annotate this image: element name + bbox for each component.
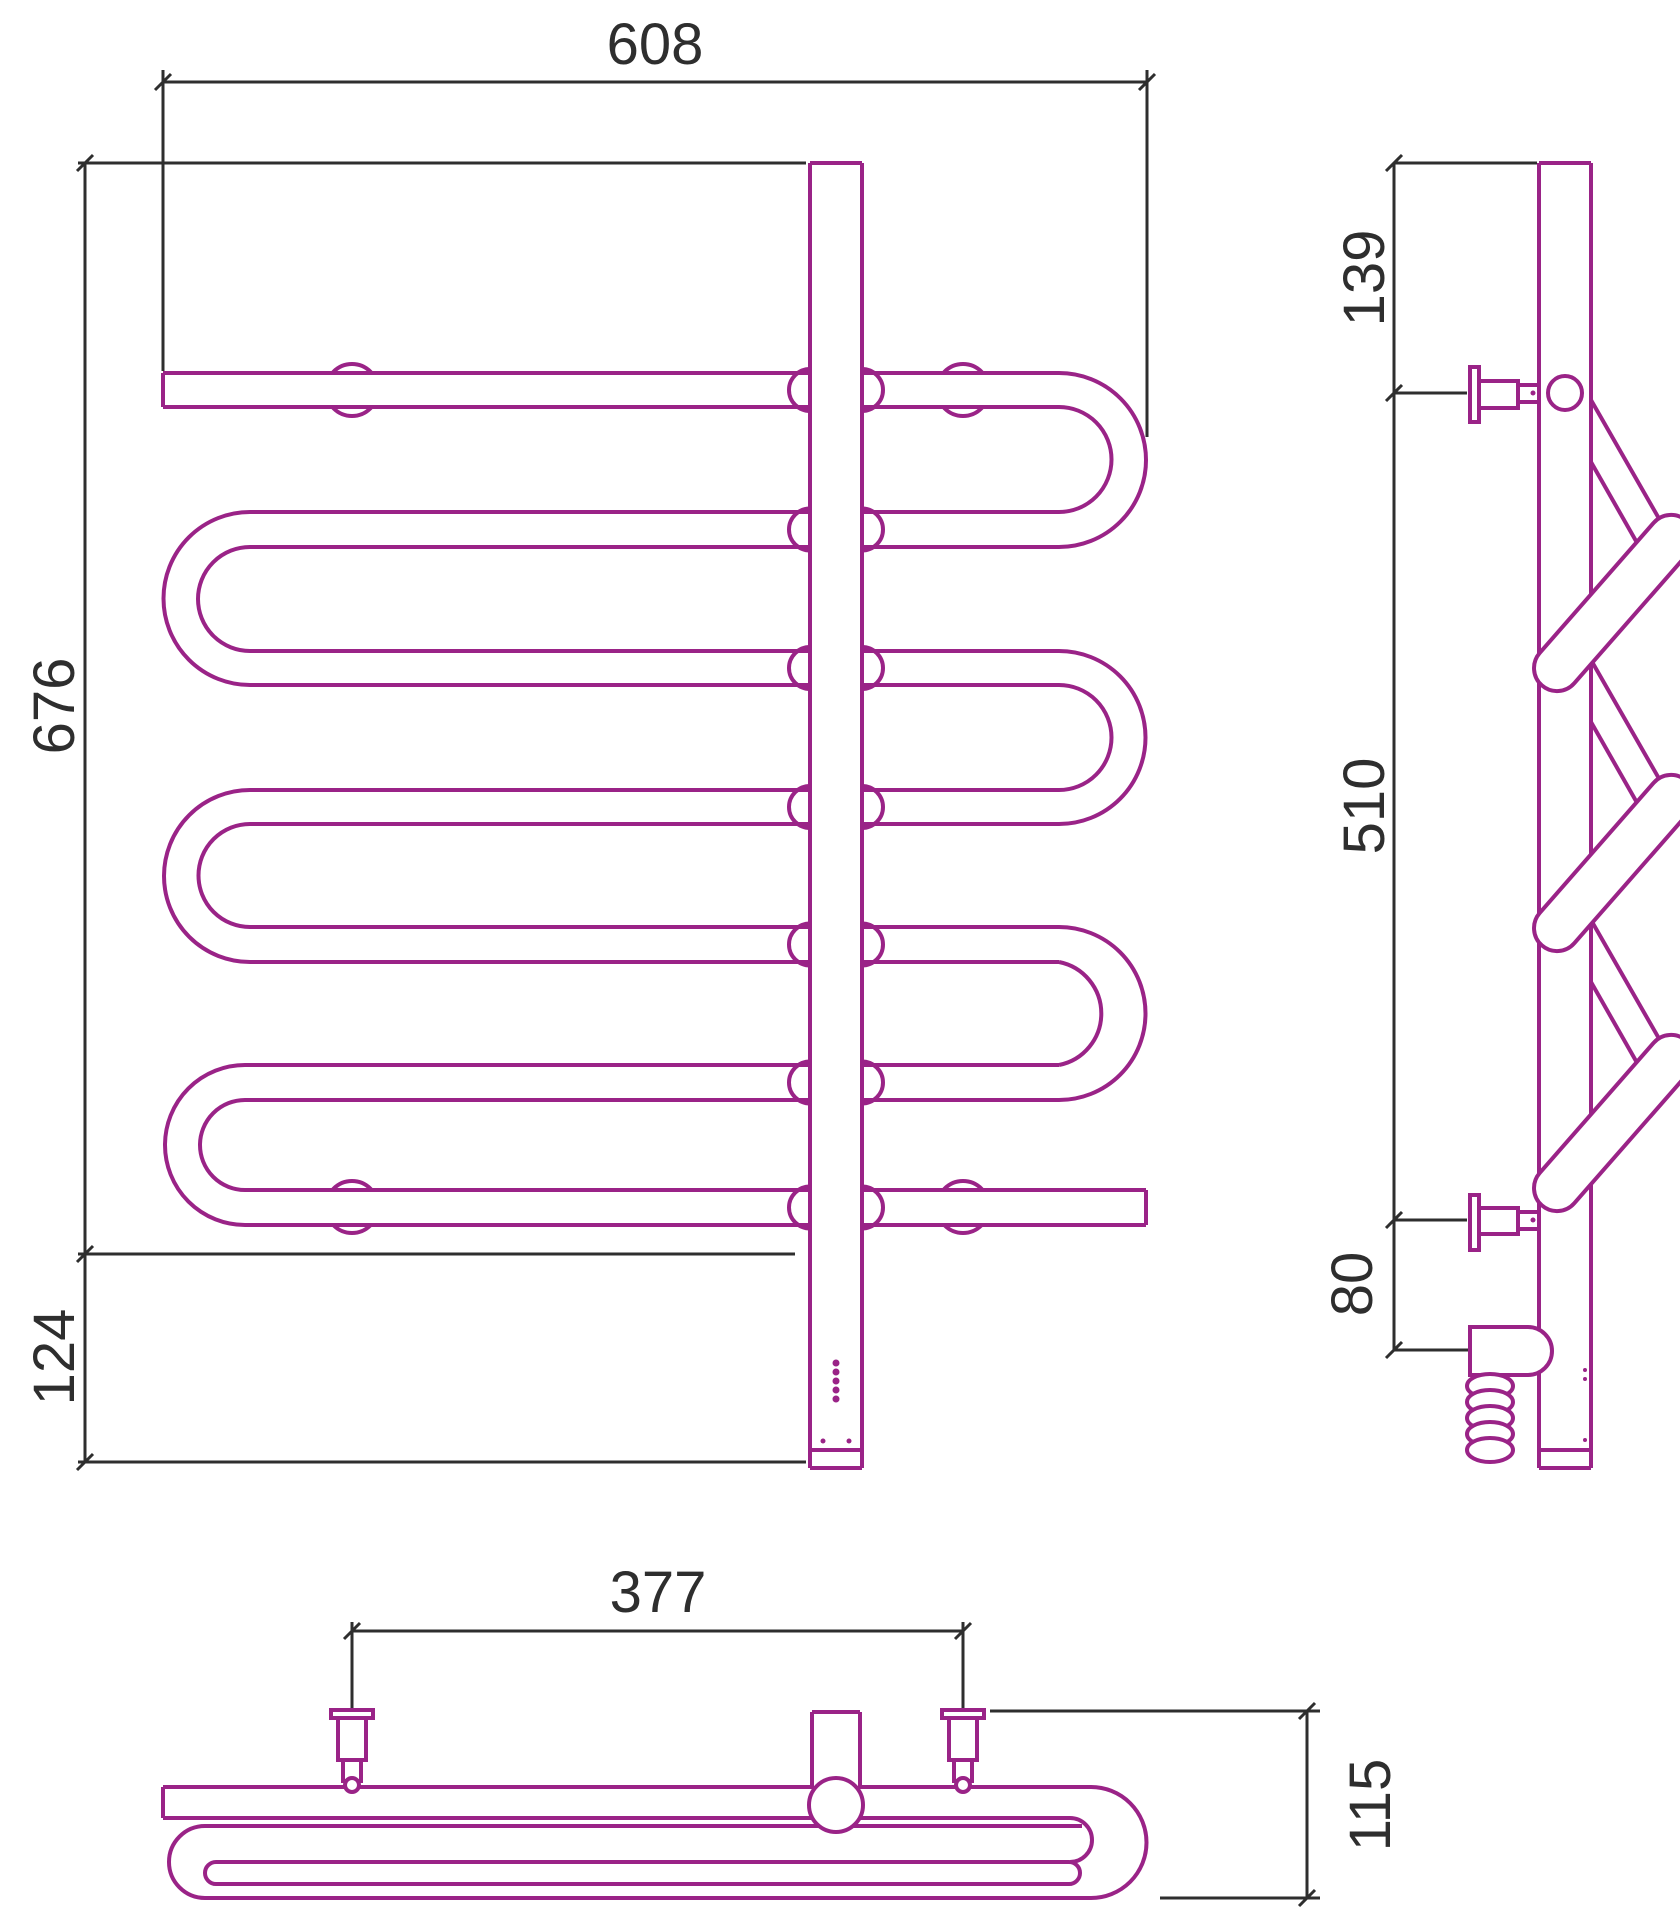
towel-rail-drawing: 608 676 124 [0,0,1680,1920]
bracket-ball-joint [1548,376,1582,410]
top-bracket-left [331,1710,373,1792]
drawing-canvas: 608 676 124 [0,0,1680,1920]
front-view: 608 676 124 [22,12,1155,1470]
top-dimensions: 377 115 [344,1560,1403,1906]
front-pipe-bodies [165,375,1144,1223]
dim-676-label: 676 [22,658,87,755]
top-bracket-right [942,1710,984,1792]
dim-80-label: 80 [1320,1252,1385,1317]
dim-510-label: 510 [1332,758,1397,855]
dim-115-label: 115 [1338,1759,1403,1851]
top-view-pipes [163,1787,1147,1898]
front-dimensions: 608 676 124 [22,12,1155,1470]
dim-377-label: 377 [610,1560,707,1625]
lower-wall-bracket [1470,1195,1539,1250]
heater-unit [1470,1327,1552,1375]
top-view: 377 115 [163,1560,1403,1906]
side-view: 139 510 80 [1320,155,1680,1468]
top-post-section [809,1778,863,1832]
power-cable-coil [1467,1374,1513,1462]
side-dimensions: 139 510 80 [1320,155,1537,1358]
dim-608-label: 608 [607,12,704,77]
side-post-body [1541,165,1589,1466]
dim-139-label: 139 [1332,230,1397,327]
dim-124-label: 124 [22,1309,87,1406]
front-post-body [808,165,864,1466]
